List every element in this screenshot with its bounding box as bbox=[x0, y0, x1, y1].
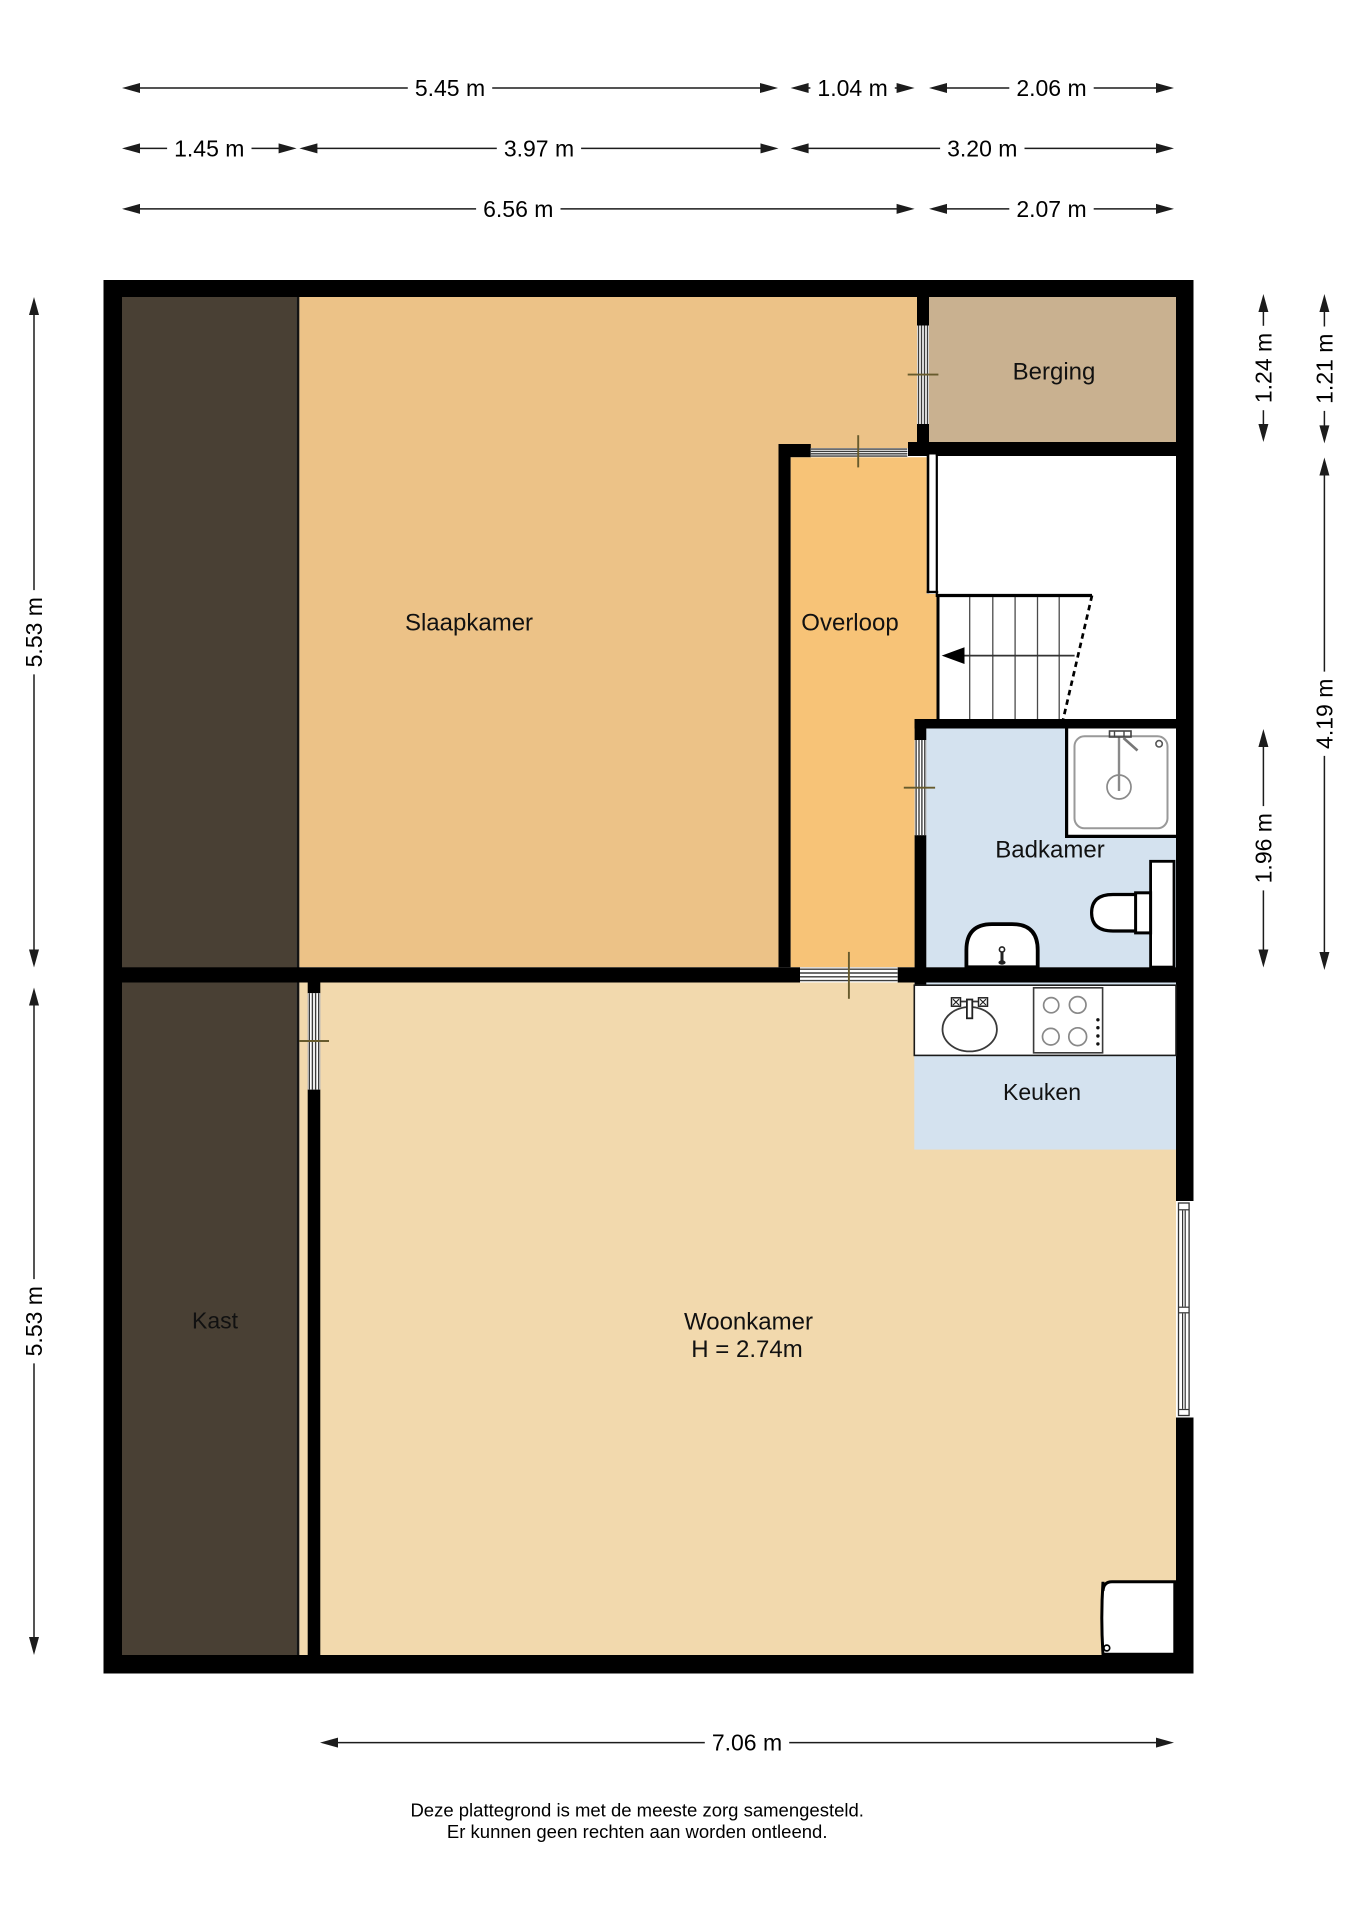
svg-text:Overloop: Overloop bbox=[801, 610, 898, 637]
svg-text:1.96 m: 1.96 m bbox=[1250, 813, 1276, 883]
svg-text:Badkamer: Badkamer bbox=[995, 837, 1104, 864]
svg-text:Woonkamer: Woonkamer bbox=[684, 1309, 813, 1336]
svg-text:2.07 m: 2.07 m bbox=[1016, 196, 1086, 222]
svg-text:Berging: Berging bbox=[1013, 359, 1096, 386]
svg-text:1.45 m: 1.45 m bbox=[174, 135, 244, 161]
svg-text:5.53 m: 5.53 m bbox=[21, 597, 47, 667]
svg-text:Deze plattegrond is met de mee: Deze plattegrond is met de meeste zorg s… bbox=[410, 1799, 864, 1820]
svg-text:1.04 m: 1.04 m bbox=[817, 75, 887, 101]
svg-text:Keuken: Keuken bbox=[1003, 1079, 1081, 1105]
svg-text:4.19 m: 4.19 m bbox=[1311, 679, 1337, 749]
svg-text:2.06 m: 2.06 m bbox=[1016, 75, 1086, 101]
svg-text:1.21 m: 1.21 m bbox=[1311, 334, 1337, 404]
svg-text:Kast: Kast bbox=[192, 1308, 239, 1334]
svg-text:6.56 m: 6.56 m bbox=[483, 196, 553, 222]
svg-text:3.97 m: 3.97 m bbox=[504, 135, 574, 161]
svg-text:5.45 m: 5.45 m bbox=[415, 75, 485, 101]
svg-text:1.24 m: 1.24 m bbox=[1250, 333, 1276, 403]
svg-text:5.53 m: 5.53 m bbox=[21, 1286, 47, 1356]
svg-text:3.20 m: 3.20 m bbox=[947, 135, 1017, 161]
svg-text:7.06 m: 7.06 m bbox=[712, 1730, 782, 1756]
svg-text:Er kunnen geen rechten aan wor: Er kunnen geen rechten aan worden ontlee… bbox=[447, 1821, 828, 1842]
svg-text:Slaapkamer: Slaapkamer bbox=[405, 610, 533, 637]
svg-text:H = 2.74m: H = 2.74m bbox=[691, 1336, 802, 1363]
